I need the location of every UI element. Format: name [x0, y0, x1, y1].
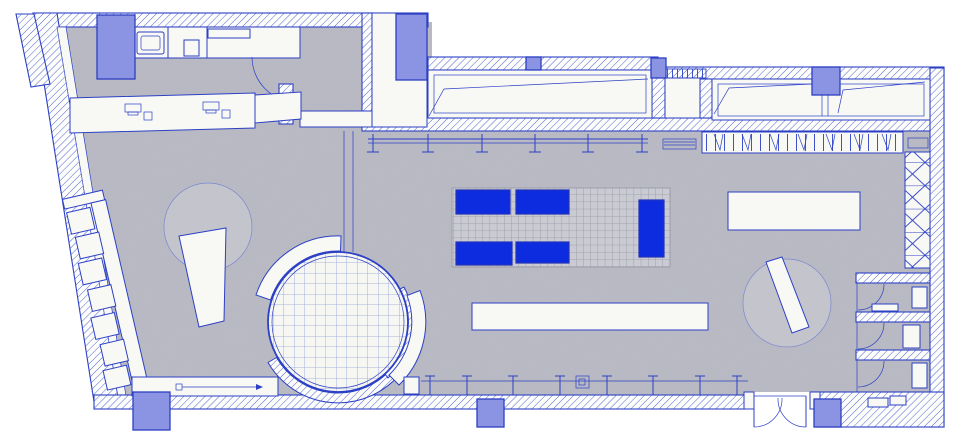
- structural-column: [812, 67, 840, 95]
- central-platform-zone: [452, 188, 670, 267]
- fitting-bench: [912, 363, 927, 388]
- shelf-box: [87, 285, 115, 312]
- fitting-shelf: [872, 304, 898, 311]
- fitting-stub-wall: [856, 312, 930, 322]
- window-display-left: [428, 70, 652, 118]
- shelf-box: [100, 339, 128, 366]
- wall-east: [930, 68, 944, 427]
- fitting-bench: [903, 325, 920, 348]
- entrance-jamb-left: [744, 392, 754, 409]
- structural-column: [651, 58, 666, 78]
- fitting-bench: [912, 287, 927, 308]
- fitting-stub-wall: [856, 350, 930, 360]
- passage-grate: [665, 69, 706, 78]
- entry-bench: [890, 396, 906, 405]
- long-display-table: [472, 303, 708, 330]
- blue-table: [456, 242, 512, 265]
- fitting-stub-wall: [856, 273, 930, 283]
- wall-passage-right: [700, 79, 712, 118]
- gridded-podium: [268, 252, 408, 392]
- blue-table-vertical: [639, 200, 664, 257]
- shelf-box: [78, 258, 106, 285]
- structural-column: [97, 15, 135, 79]
- display-table-upper-right: [728, 192, 860, 230]
- structural-column: [396, 14, 427, 80]
- blue-table: [456, 190, 510, 214]
- shelf-box: [91, 313, 119, 340]
- xbrace-pattern: [905, 152, 930, 268]
- blue-table: [516, 242, 569, 263]
- structural-column: [477, 399, 504, 427]
- backroom-sill: [300, 111, 372, 127]
- blue-table: [516, 190, 569, 214]
- shelf-box: [75, 232, 103, 259]
- hanger-ticks: [704, 134, 901, 151]
- floor-plan-canvas: Retail store ground-floor plan — bluepri…: [0, 0, 960, 447]
- floor-plan-page: Retail store ground-floor plan — bluepri…: [0, 0, 960, 447]
- cash-counter-right: [255, 92, 301, 123]
- structural-column: [133, 392, 170, 430]
- shelf-box: [67, 207, 95, 234]
- structural-column: [814, 399, 841, 427]
- wall-top-middle: [428, 57, 658, 70]
- structural-column: [526, 57, 541, 70]
- vestibule-passage: [665, 78, 700, 118]
- storefront-box: [404, 377, 419, 394]
- entry-bench: [868, 398, 888, 407]
- wall-bottom: [94, 395, 750, 409]
- cash-counter: [70, 93, 255, 133]
